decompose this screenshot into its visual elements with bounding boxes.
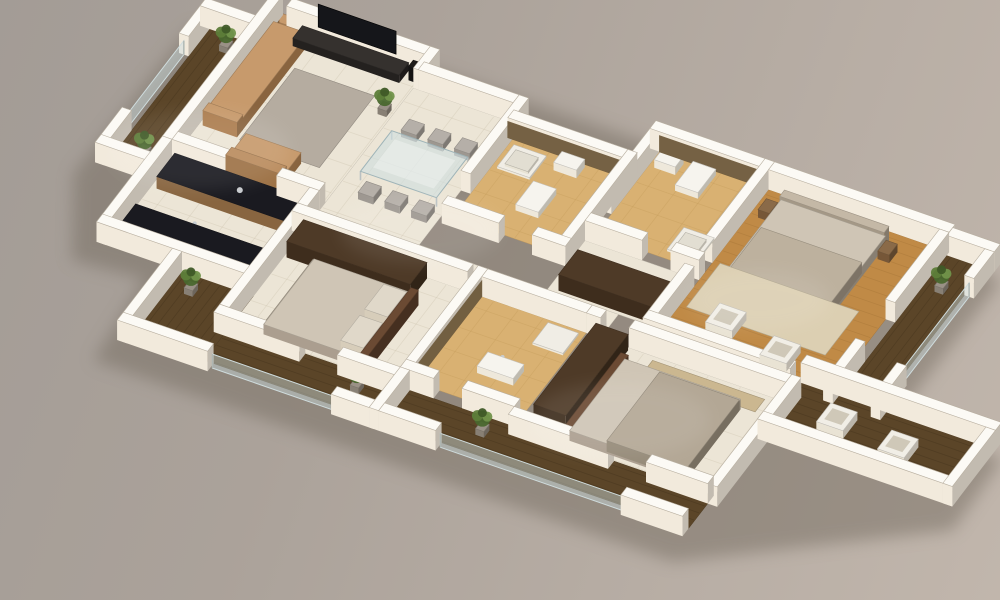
- hob-burner-2: [237, 187, 243, 193]
- scene-background: [0, 0, 1000, 600]
- floor-sheen-2: [340, 196, 500, 264]
- floor-sheen-4: [690, 270, 830, 330]
- floor-sheen-1: [110, 110, 290, 190]
- floor-sheen-3: [530, 382, 710, 458]
- floor-plan-render: [0, 0, 1000, 600]
